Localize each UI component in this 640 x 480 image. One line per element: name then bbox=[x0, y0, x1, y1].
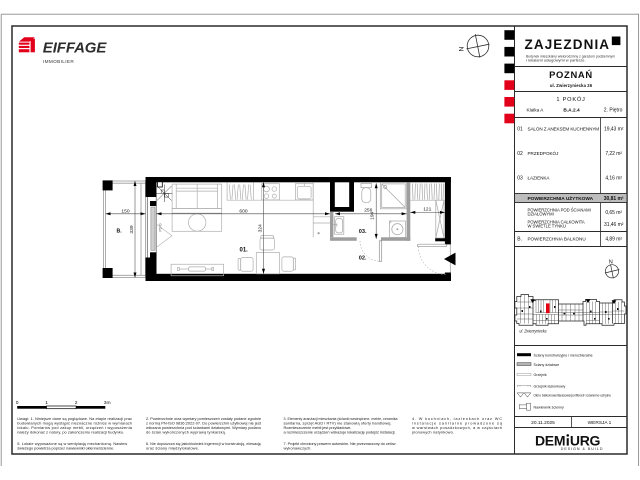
svg-text:ul. Zwierzyniecka: ul. Zwierzyniecka bbox=[520, 329, 548, 334]
svg-text:0,65 m²: 0,65 m² bbox=[605, 210, 622, 216]
svg-text:Nawiewnik ścienny: Nawiewnik ścienny bbox=[534, 406, 565, 410]
svg-text:B.: B. bbox=[517, 237, 522, 243]
svg-text:Grzejnik łazienkowy: Grzejnik łazienkowy bbox=[534, 384, 566, 388]
svg-text:7,22 m²: 7,22 m² bbox=[605, 151, 622, 157]
svg-text:01.: 01. bbox=[240, 248, 249, 254]
svg-text:03.: 03. bbox=[359, 229, 367, 235]
svg-text:121: 121 bbox=[423, 207, 431, 213]
svg-text:B.A.2.4: B.A.2.4 bbox=[563, 108, 580, 114]
svg-text:31,46 m²: 31,46 m² bbox=[604, 222, 624, 228]
svg-text:W ŚWIETLE TYNKU: W ŚWIETLE TYNKU bbox=[528, 224, 566, 229]
svg-text:2. Piętro: 2. Piętro bbox=[604, 108, 623, 114]
svg-text:30,81 m²: 30,81 m² bbox=[604, 196, 624, 202]
svg-text:do ścian wykończonych wyprawą: do ścian wykończonych wyprawą tynkarską. bbox=[146, 430, 226, 435]
svg-text:należy dokonać z natury, po za: należy dokonać z natury, po zakończeniu … bbox=[17, 430, 124, 435]
svg-text:2: 2 bbox=[75, 400, 78, 406]
svg-text:03: 03 bbox=[517, 176, 523, 182]
svg-text:DESIGN & BUILD: DESIGN & BUILD bbox=[561, 447, 604, 451]
svg-text:0: 0 bbox=[16, 400, 19, 406]
svg-text:PRZEDPOKÓJ: PRZEDPOKÓJ bbox=[528, 150, 559, 156]
svg-text:pionowych natynkowo.: pionowych natynkowo. bbox=[412, 430, 454, 435]
svg-text:ZAJEZDNIA: ZAJEZDNIA bbox=[525, 37, 611, 52]
svg-text:20.11.2025: 20.11.2025 bbox=[531, 420, 555, 426]
svg-text:324: 324 bbox=[258, 224, 264, 232]
svg-text:1 POKÓJ: 1 POKÓJ bbox=[556, 96, 585, 103]
svg-text:4,16 m²: 4,16 m² bbox=[605, 176, 622, 182]
svg-text:POZNAŃ: POZNAŃ bbox=[549, 69, 593, 80]
svg-text:Ściany działowe: Ściany działowe bbox=[534, 362, 560, 367]
svg-text:EIFFAGE: EIFFAGE bbox=[43, 39, 108, 56]
svg-text:339: 339 bbox=[129, 225, 135, 233]
svg-text:4,89 m²: 4,89 m² bbox=[605, 237, 622, 243]
svg-text:POWIERZCHNIA BALKONU: POWIERZCHNIA BALKONU bbox=[528, 237, 586, 242]
svg-text:URG: URG bbox=[570, 433, 601, 449]
svg-text:WERSJA 1: WERSJA 1 bbox=[588, 420, 612, 426]
svg-text:01: 01 bbox=[517, 126, 523, 132]
svg-text:świeżego powietrza poprzez naw: świeżego powietrza poprzez nawiewniki ok… bbox=[17, 445, 114, 450]
svg-text:19,43 m²: 19,43 m² bbox=[604, 126, 624, 132]
svg-text:wykonawczych.: wykonawczych. bbox=[284, 445, 312, 450]
svg-text:a rozmieszczenie urządzeń wska: a rozmieszczenie urządzeń wskazuje lokal… bbox=[284, 430, 396, 435]
svg-text:ŁAZIENKA: ŁAZIENKA bbox=[528, 176, 551, 181]
svg-text:ul. Zwierzyniecka 26: ul. Zwierzyniecka 26 bbox=[550, 83, 593, 88]
svg-text:DZIAŁOWYMI: DZIAŁOWYMI bbox=[528, 212, 554, 217]
svg-text:600: 600 bbox=[239, 208, 247, 214]
svg-text:1: 1 bbox=[45, 400, 48, 406]
svg-text:3m: 3m bbox=[104, 400, 111, 406]
svg-text:Ściany konstrukcyjne i nierozb: Ściany konstrukcyjne i nierozbieralne bbox=[534, 352, 593, 357]
svg-text:SALON Z ANEKSEM KUCHENNYM: SALON Z ANEKSEM KUCHENNYM bbox=[528, 126, 600, 131]
svg-text:N: N bbox=[459, 47, 466, 52]
svg-text:194: 194 bbox=[370, 211, 376, 219]
svg-text:Okno balkonowe/tarasowe/portfe: Okno balkonowe/tarasowe/portfenetr rozwi… bbox=[534, 393, 612, 397]
svg-text:02.: 02. bbox=[359, 256, 367, 262]
svg-text:02: 02 bbox=[517, 151, 523, 157]
svg-text:Grzejnik: Grzejnik bbox=[534, 373, 547, 377]
svg-text:Klatka A: Klatka A bbox=[527, 108, 545, 113]
svg-text:i lokalami usługowymi w parter: i lokalami usługowymi w parterze. bbox=[526, 58, 586, 63]
svg-text:150: 150 bbox=[121, 208, 129, 214]
svg-text:B.: B. bbox=[117, 229, 123, 235]
svg-text:IMMOBILIER: IMMOBILIER bbox=[43, 59, 74, 64]
svg-text:DEM: DEM bbox=[535, 433, 565, 449]
svg-text:N: N bbox=[609, 260, 613, 266]
svg-text:POWIERZCHNIA UŻYTKOWA: POWIERZCHNIA UŻYTKOWA bbox=[528, 195, 594, 202]
svg-text:PD-O: PD-O bbox=[158, 223, 162, 231]
svg-text:oraz ściany międzylokalowe.: oraz ściany międzylokalowe. bbox=[146, 445, 199, 450]
